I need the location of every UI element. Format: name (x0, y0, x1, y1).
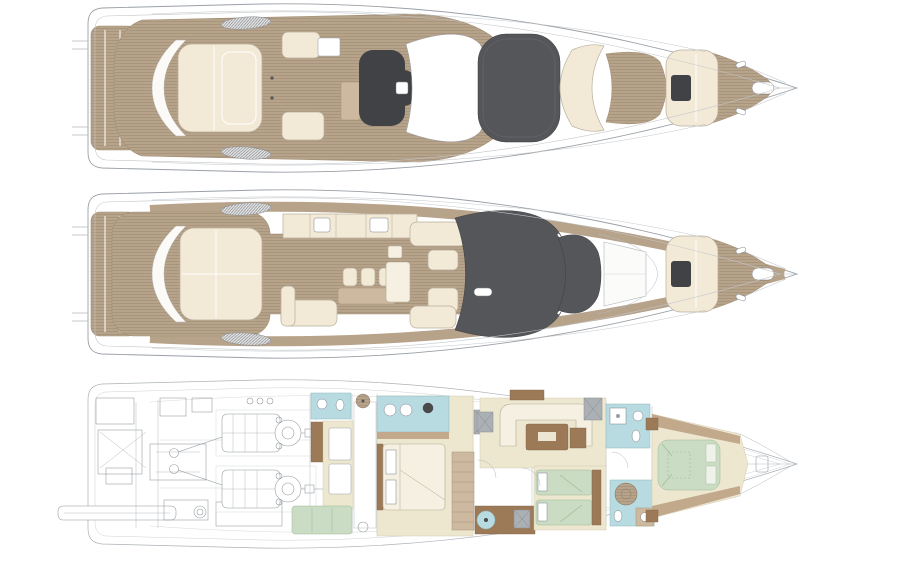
yacht-deck-plans (0, 0, 900, 564)
toilet (632, 430, 640, 442)
galley (475, 506, 535, 534)
galley-sink (314, 218, 330, 232)
dinette (477, 390, 606, 468)
bar-stool (343, 268, 357, 286)
toilet (336, 400, 344, 411)
sink (317, 399, 327, 409)
headboard (592, 470, 601, 525)
twin-cabin (522, 466, 606, 530)
sideboard (510, 390, 544, 400)
salon-side-table (388, 246, 402, 258)
windshield (455, 211, 568, 338)
bar-stool (361, 268, 375, 286)
deck-fitting (270, 76, 273, 79)
salon-table (386, 262, 410, 302)
crew-wardrobe (311, 422, 323, 462)
pillow (706, 444, 716, 462)
toilet (423, 403, 433, 413)
yacht-deck-plans-figure (0, 0, 900, 564)
sink (384, 404, 396, 416)
pillow (386, 450, 396, 474)
wardrobe (646, 510, 658, 522)
flybridge-deck-plan (72, 4, 797, 172)
crew-bunk (329, 464, 351, 494)
crew-bunk (329, 428, 351, 460)
bow-sunpad (666, 236, 795, 312)
salon-bench (410, 306, 456, 328)
aft-sunpad (178, 44, 262, 132)
round-shower (615, 483, 637, 505)
vip-cabin (646, 414, 748, 522)
toilet (614, 511, 622, 522)
main-deck-plan (72, 190, 797, 358)
sink (400, 404, 412, 416)
bow-teak-sunpad (606, 52, 666, 124)
galley-units (283, 214, 417, 238)
pillow (386, 480, 396, 504)
staircase (452, 452, 474, 530)
deck-fitting (270, 96, 273, 99)
bar-stools (343, 268, 393, 286)
flybridge-table (318, 38, 340, 56)
headboard (377, 444, 383, 510)
trim-tabs (72, 41, 88, 135)
trim-tabs (72, 227, 88, 321)
sink (633, 411, 643, 421)
lower-deck-plan (58, 380, 797, 548)
helm-screen (396, 82, 408, 94)
bow-locker (740, 434, 795, 494)
wet-bar-cabinet (341, 82, 360, 120)
bow-sunpad (666, 50, 795, 126)
galley-cooktop (370, 218, 388, 232)
cabinet (570, 428, 586, 448)
crew-settee (292, 506, 352, 534)
crew-bathroom (311, 393, 351, 419)
pillow (706, 466, 716, 484)
throttle-control (474, 288, 492, 296)
flybridge-bench (282, 112, 324, 140)
helm-seat (428, 250, 458, 270)
pillow (538, 503, 547, 521)
wardrobe (646, 418, 658, 430)
flybridge-bench (282, 32, 320, 58)
hardtop-sunroof (478, 34, 560, 142)
day-head (606, 404, 650, 448)
